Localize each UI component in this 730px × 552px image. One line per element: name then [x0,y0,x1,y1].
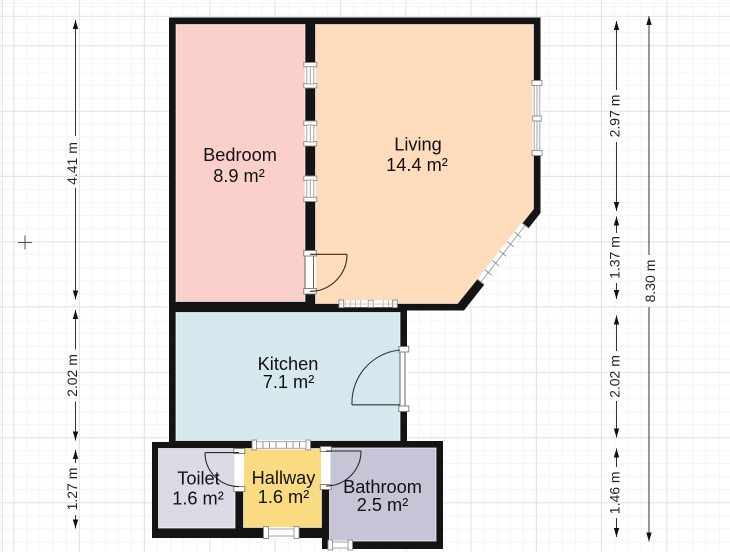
svg-text:1.6 m²: 1.6 m² [172,489,224,509]
svg-text:1.6 m²: 1.6 m² [258,487,310,507]
svg-text:1.37 m: 1.37 m [606,236,622,279]
svg-text:1.27 m: 1.27 m [64,468,80,511]
svg-text:14.4 m²: 14.4 m² [386,155,448,175]
svg-text:Bathroom: Bathroom [343,477,422,497]
svg-text:Hallway: Hallway [252,468,317,488]
svg-text:8.30 m: 8.30 m [642,260,658,303]
svg-text:Kitchen: Kitchen [258,354,319,374]
svg-text:7.1 m²: 7.1 m² [263,372,315,392]
svg-text:4.41 m: 4.41 m [64,142,80,185]
svg-text:Toilet: Toilet [177,469,219,489]
svg-text:2.02 m: 2.02 m [606,355,622,398]
svg-text:2.97 m: 2.97 m [606,95,622,138]
svg-text:2.5 m²: 2.5 m² [357,495,409,515]
svg-text:8.9 m²: 8.9 m² [213,166,265,186]
svg-text:Living: Living [394,135,442,155]
svg-text:Bedroom: Bedroom [203,145,277,165]
svg-text:2.02 m: 2.02 m [64,354,80,397]
svg-text:1.46 m: 1.46 m [606,471,622,514]
